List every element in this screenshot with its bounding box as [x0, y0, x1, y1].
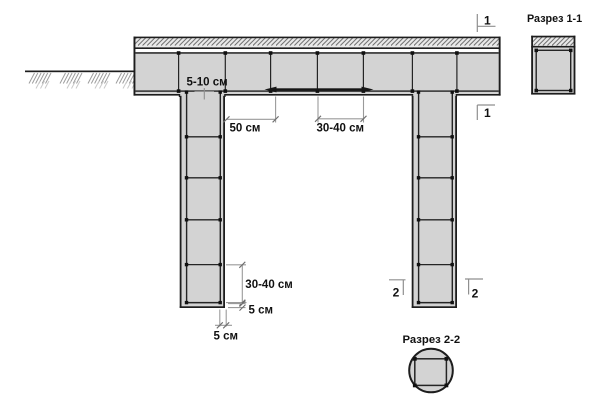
svg-text:1: 1 [484, 14, 491, 28]
svg-text:1: 1 [484, 106, 491, 120]
svg-text:Разрез 2-2: Разрез 2-2 [403, 334, 461, 346]
svg-text:5 см: 5 см [214, 331, 239, 343]
svg-text:Разрез 1-1: Разрез 1-1 [527, 13, 582, 25]
svg-text:30-40 см: 30-40 см [317, 123, 365, 135]
svg-text:50 см: 50 см [230, 123, 261, 135]
svg-text:5-10 см: 5-10 см [187, 77, 228, 89]
svg-text:30-40 см: 30-40 см [245, 279, 293, 291]
svg-text:2: 2 [472, 287, 479, 301]
svg-text:2: 2 [393, 286, 400, 300]
svg-text:5 см: 5 см [249, 305, 274, 317]
